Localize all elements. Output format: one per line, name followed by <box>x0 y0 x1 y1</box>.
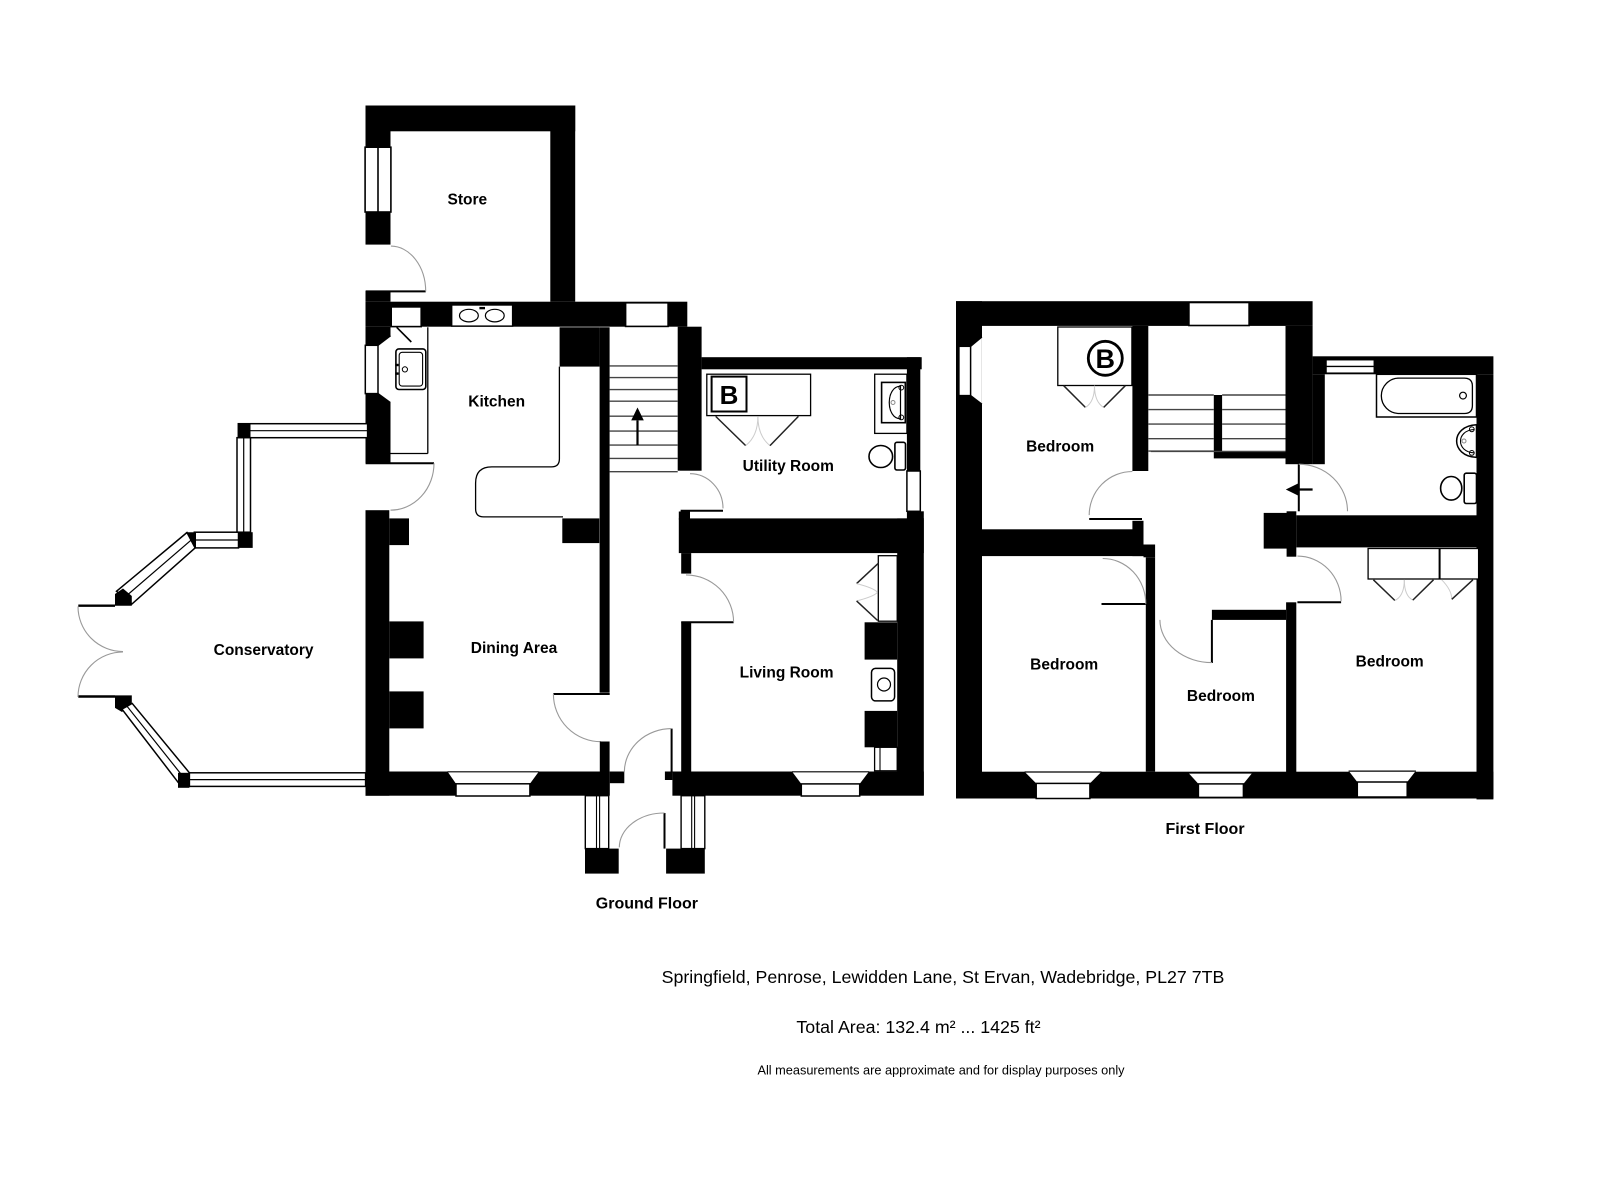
svg-text:B: B <box>1096 344 1116 374</box>
svg-text:Bedroom: Bedroom <box>1030 657 1098 674</box>
svg-text:Dining Area: Dining Area <box>471 640 558 657</box>
svg-text:B: B <box>720 380 739 410</box>
svg-text:Living Room: Living Room <box>740 665 834 682</box>
svg-text:Bedroom: Bedroom <box>1187 688 1255 705</box>
svg-text:Springfield, Penrose, Lewidden: Springfield, Penrose, Lewidden Lane, St … <box>662 967 1225 987</box>
svg-text:Conservatory: Conservatory <box>214 642 314 659</box>
svg-text:Kitchen: Kitchen <box>468 394 525 411</box>
svg-text:Bedroom: Bedroom <box>1026 439 1094 456</box>
svg-text:Utility Room: Utility Room <box>743 458 834 475</box>
svg-text:Bedroom: Bedroom <box>1356 654 1424 671</box>
svg-text:Ground Floor: Ground Floor <box>596 896 698 913</box>
svg-text:Store: Store <box>447 192 487 209</box>
svg-text:First Floor: First Floor <box>1165 821 1244 838</box>
svg-text:All measurements are approxima: All measurements are approximate and for… <box>757 1063 1125 1078</box>
svg-text:Total Area: 132.4 m² ... 1425: Total Area: 132.4 m² ... 1425 ft² <box>796 1017 1040 1037</box>
